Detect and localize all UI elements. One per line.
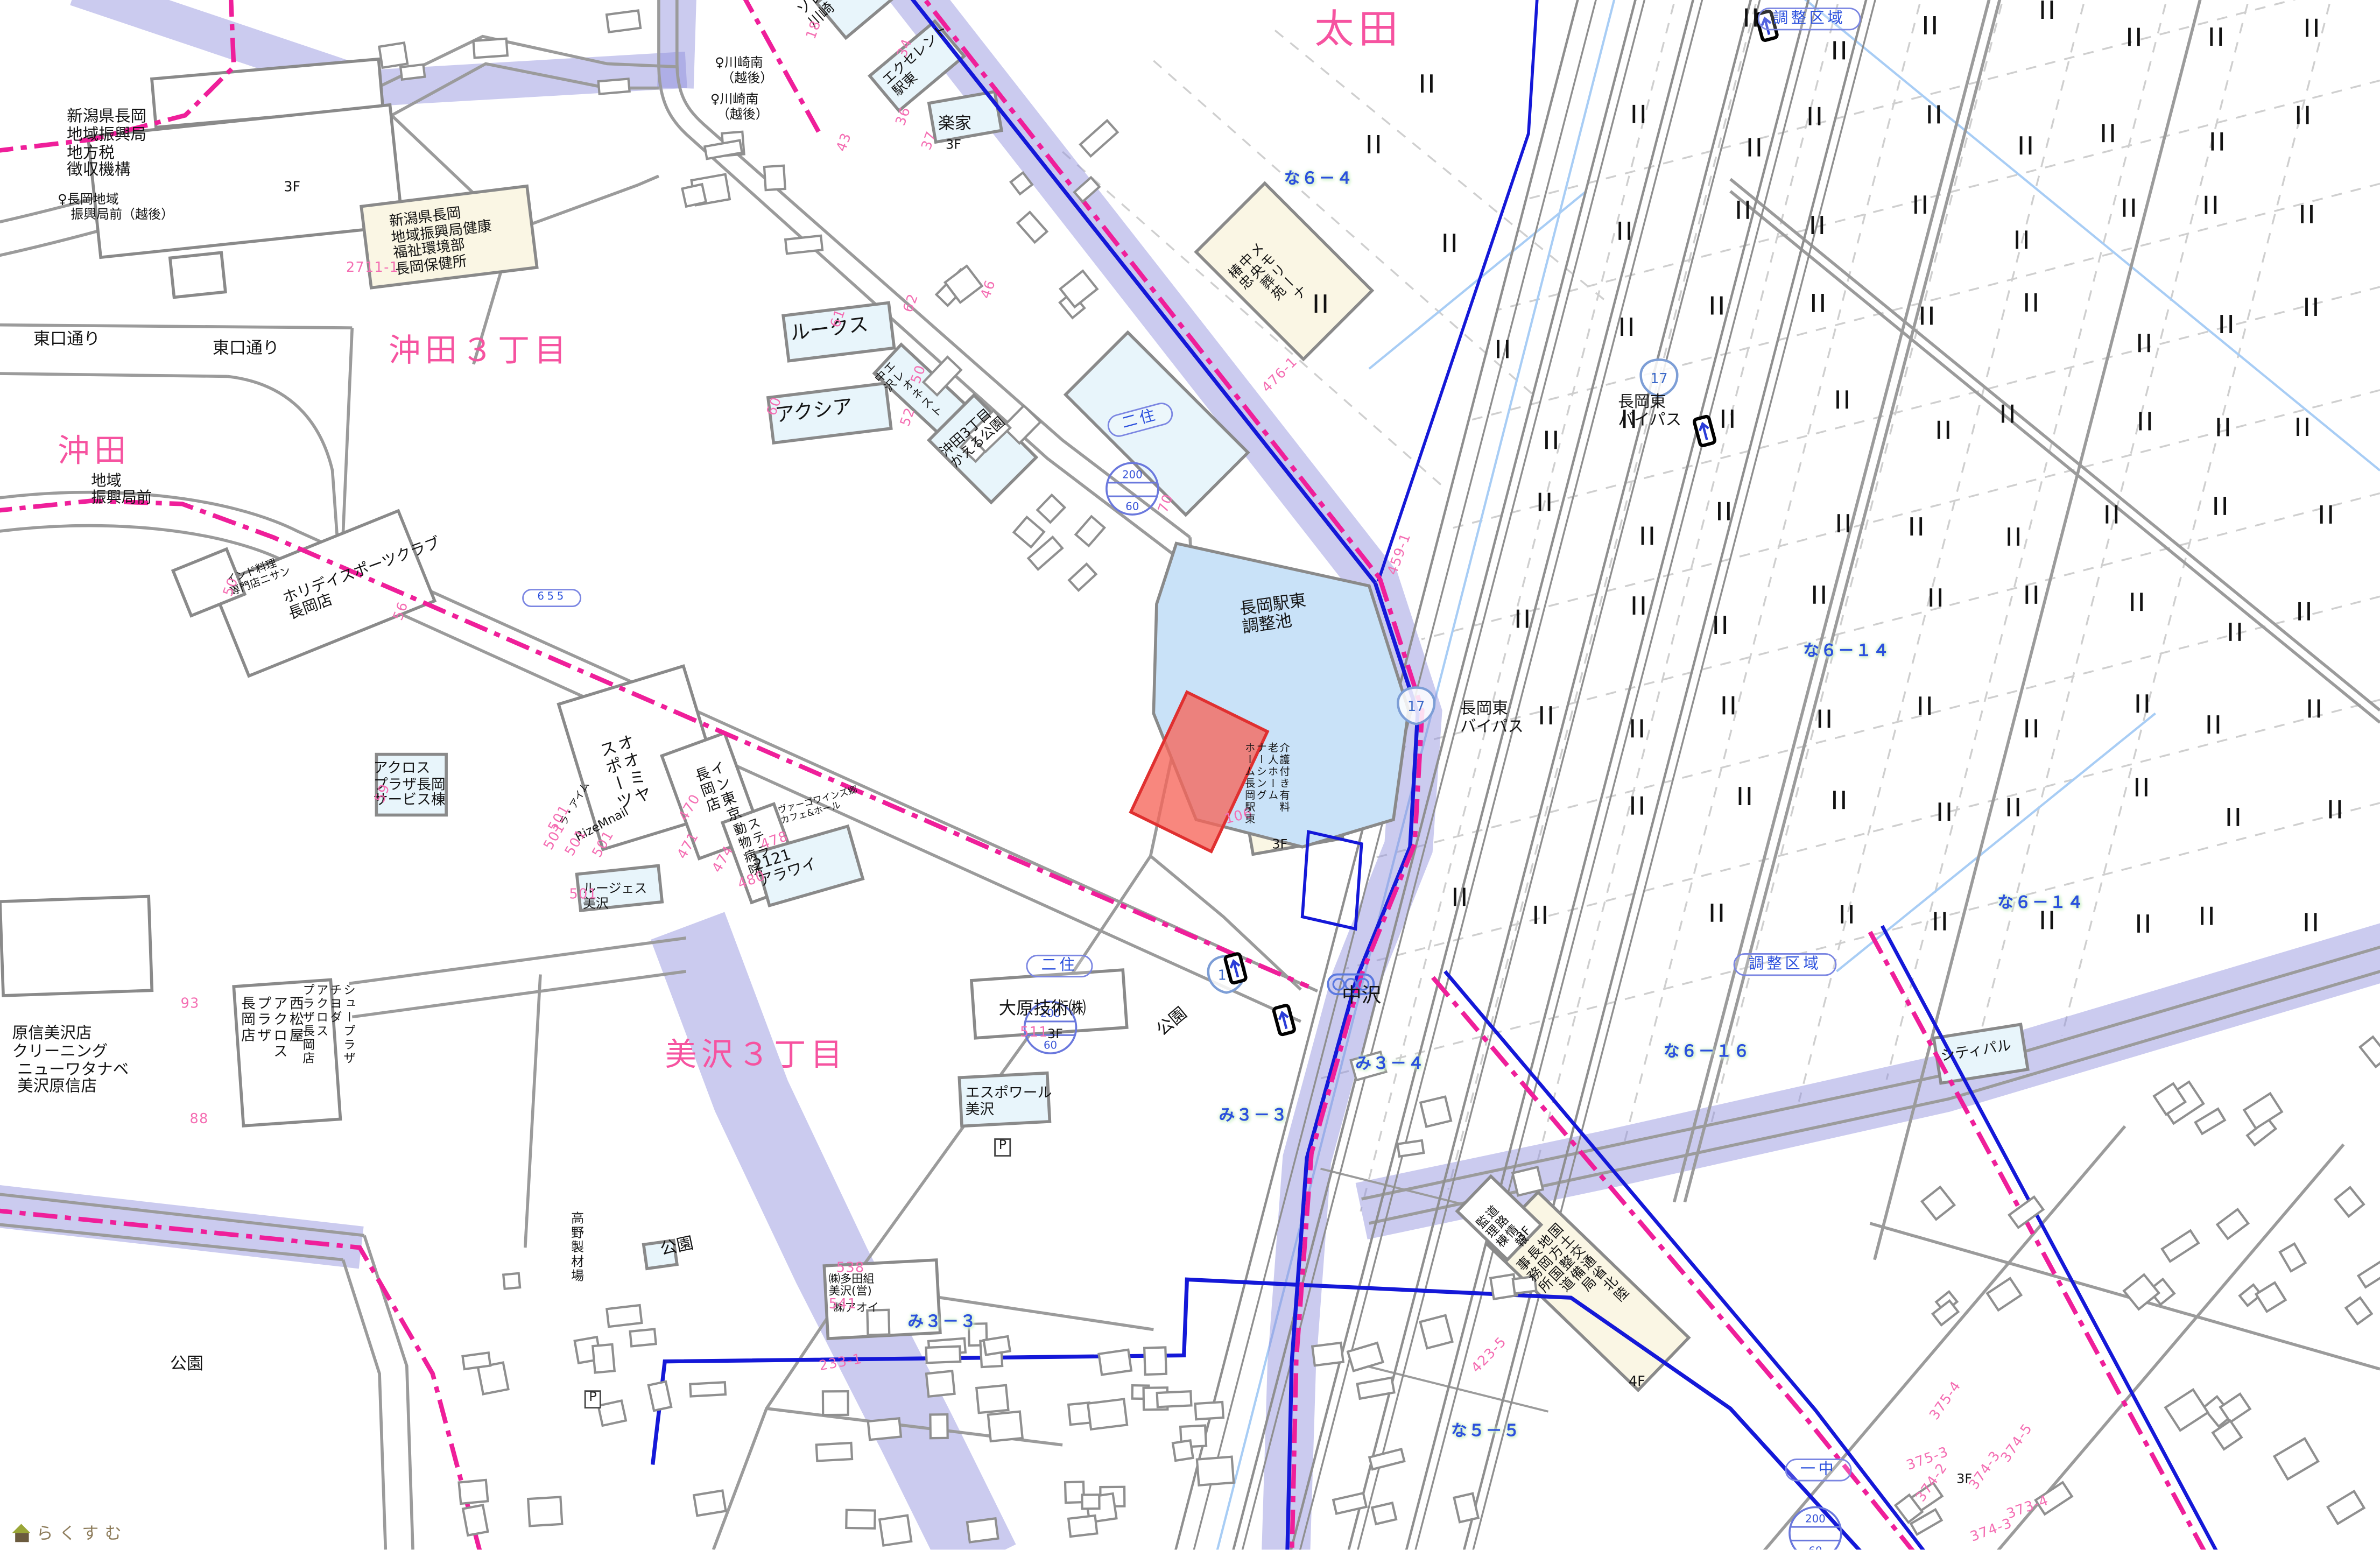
zoning-ratio-circle: 20060: [1790, 1507, 1841, 1549]
one-way-arrow-icon: [1273, 1005, 1295, 1035]
svg-text:200: 200: [1040, 1007, 1061, 1020]
svg-text:60: 60: [1044, 1039, 1057, 1052]
map-canvas: 171717200602006020060: [0, 0, 2380, 1549]
building-layer: [0, 0, 2028, 1390]
svg-text:17: 17: [1650, 370, 1667, 386]
watermark: らくすむ: [12, 1521, 128, 1545]
map-stage: 171717200602006020060 太田沖田３丁目沖田美沢３丁目新潟県長…: [0, 0, 2380, 1549]
zoning-ratio-circle: 20060: [1107, 463, 1158, 515]
svg-text:200: 200: [1122, 468, 1143, 481]
svg-text:60: 60: [1808, 1545, 1822, 1550]
watermark-text: らくすむ: [37, 1521, 128, 1545]
svg-text:17: 17: [1407, 698, 1425, 714]
svg-text:200: 200: [1805, 1513, 1826, 1525]
svg-text:60: 60: [1125, 501, 1139, 513]
one-way-arrow-icon: [1694, 416, 1715, 446]
one-way-arrow-icon: [1756, 11, 1777, 41]
house-icon: [12, 1524, 31, 1542]
route-17-shield: 17: [1641, 360, 1678, 396]
route-17-shield: 17: [1398, 688, 1434, 724]
